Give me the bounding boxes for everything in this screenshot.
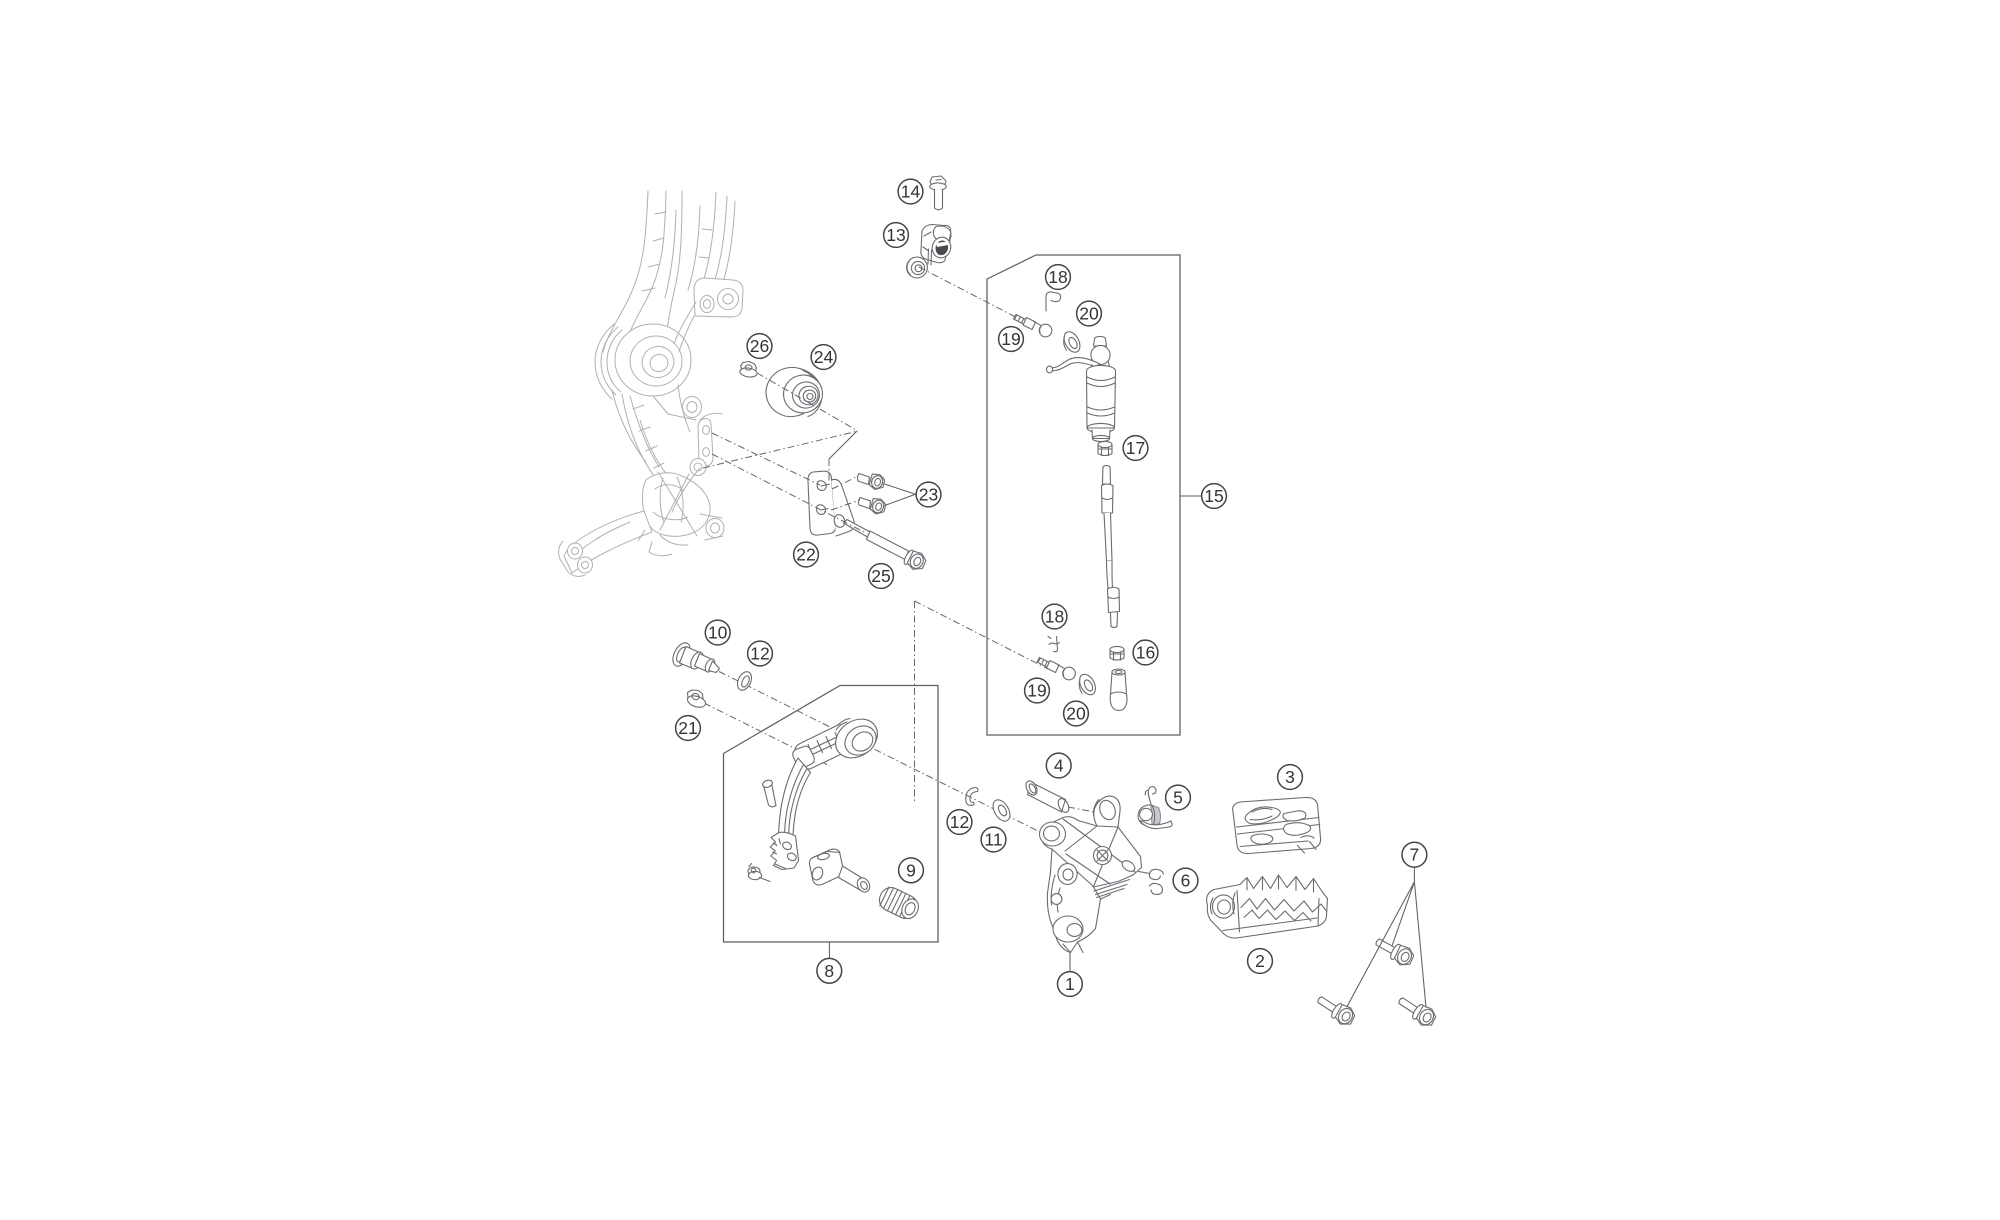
svg-text:5: 5 — [1173, 788, 1183, 808]
svg-text:3: 3 — [1285, 767, 1295, 787]
svg-text:24: 24 — [814, 347, 834, 367]
svg-text:19: 19 — [1001, 329, 1020, 349]
svg-text:13: 13 — [886, 225, 905, 245]
svg-text:25: 25 — [871, 566, 890, 586]
svg-text:9: 9 — [906, 860, 916, 880]
svg-text:20: 20 — [1066, 704, 1086, 724]
svg-text:1: 1 — [1065, 974, 1075, 994]
svg-text:12: 12 — [950, 812, 969, 832]
svg-text:12: 12 — [750, 644, 769, 664]
svg-text:18: 18 — [1048, 267, 1067, 287]
svg-text:23: 23 — [919, 485, 938, 505]
svg-text:14: 14 — [901, 182, 921, 202]
svg-text:26: 26 — [750, 336, 769, 356]
svg-text:15: 15 — [1204, 486, 1223, 506]
svg-text:10: 10 — [708, 623, 728, 643]
svg-text:17: 17 — [1126, 438, 1145, 458]
svg-text:8: 8 — [824, 961, 834, 981]
svg-text:22: 22 — [796, 545, 815, 565]
svg-text:6: 6 — [1181, 871, 1191, 891]
svg-text:20: 20 — [1079, 304, 1099, 324]
svg-text:11: 11 — [984, 830, 1002, 850]
svg-text:19: 19 — [1027, 681, 1046, 701]
svg-text:16: 16 — [1136, 643, 1155, 663]
svg-text:7: 7 — [1410, 845, 1420, 865]
svg-text:2: 2 — [1255, 951, 1265, 971]
svg-text:18: 18 — [1045, 607, 1064, 627]
svg-text:4: 4 — [1054, 756, 1064, 776]
svg-text:21: 21 — [678, 718, 697, 738]
